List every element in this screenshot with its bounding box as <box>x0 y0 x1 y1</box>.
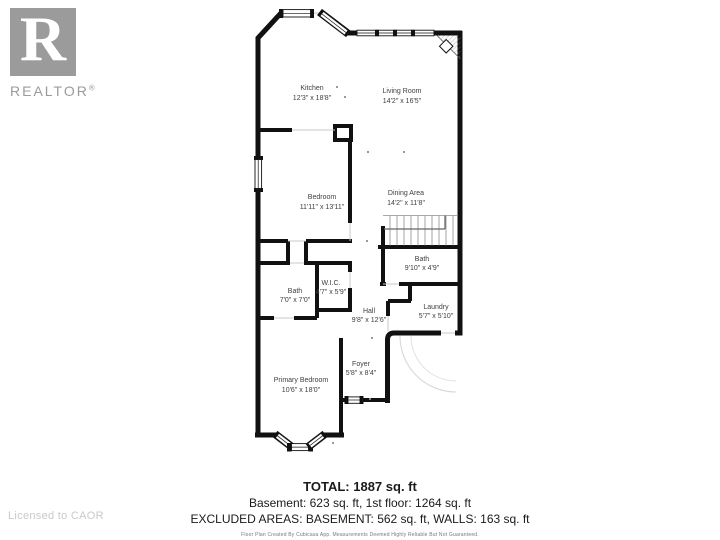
window-living-room-band <box>357 30 434 36</box>
room-name-hall-bath: Bath <box>415 256 430 263</box>
room-name-primary-bedroom: Primary Bedroom <box>274 377 329 384</box>
room-name-laundry: Laundry <box>423 304 449 311</box>
room-dims-dining-area: 14'2" x 11'8" <box>387 200 425 207</box>
room-labels: Kitchen 12'3" x 18'8" Living Room 14'2" … <box>274 85 454 394</box>
window-bedroom <box>254 156 263 192</box>
window-primary-bay-right <box>308 434 325 447</box>
room-dims-hall: 9'8" x 12'6" <box>352 317 387 324</box>
license-text: Licensed to CAOR <box>8 510 104 522</box>
corner-fireplace-icon <box>437 36 461 60</box>
room-dims-wic: 4'7" x 5'9" <box>316 289 347 296</box>
floor-plan-drawing: Kitchen 12'3" x 18'8" Living Room 14'2" … <box>0 0 720 540</box>
room-name-ensuite-bath: Bath <box>288 288 303 295</box>
window-foyer <box>345 396 364 404</box>
area-summary: TOTAL: 1887 sq. ft Basement: 623 sq. ft,… <box>0 479 720 538</box>
room-dims-primary-bedroom: 10'6" x 18'0" <box>282 387 321 394</box>
room-name-wic: W.I.C. <box>321 280 340 287</box>
room-name-living-room: Living Room <box>383 88 422 95</box>
room-dims-ensuite-bath: 7'0" x 7'0" <box>280 297 311 304</box>
floor-areas-text: Basement: 623 sq. ft, 1st floor: 1264 sq… <box>0 495 720 511</box>
room-dims-hall-bath: 9'10" x 4'9" <box>405 265 440 272</box>
room-name-foyer: Foyer <box>352 361 371 368</box>
excluded-areas-text: EXCLUDED AREAS: BASEMENT: 562 sq. ft, WA… <box>0 511 720 527</box>
room-dims-kitchen: 12'3" x 18'8" <box>293 95 332 102</box>
disclaimer-text: Floor Plan Created By Cubicasa App. Meas… <box>0 532 720 538</box>
room-dims-bedroom: 11'11" x 13'11" <box>300 204 345 211</box>
room-dims-foyer: 5'8" x 8'4" <box>346 370 377 377</box>
room-name-dining-area: Dining Area <box>388 190 424 197</box>
window-kitchen-bay-top <box>279 9 314 18</box>
room-name-hall: Hall <box>363 308 376 315</box>
room-dims-laundry: 5'7" x 5'10" <box>419 313 454 320</box>
total-area-text: TOTAL: 1887 sq. ft <box>0 479 720 494</box>
window-kitchen-bay-diagonal <box>320 12 349 34</box>
floor-plan-page: { "logo": { "letter": "R", "brand": "REA… <box>0 0 720 540</box>
entry-step-arcs <box>400 336 456 392</box>
room-name-bedroom: Bedroom <box>308 194 337 201</box>
room-name-kitchen: Kitchen <box>300 85 323 92</box>
windows <box>254 9 434 452</box>
room-dims-living-room: 14'2" x 16'5" <box>383 98 422 105</box>
staircase <box>383 216 458 246</box>
